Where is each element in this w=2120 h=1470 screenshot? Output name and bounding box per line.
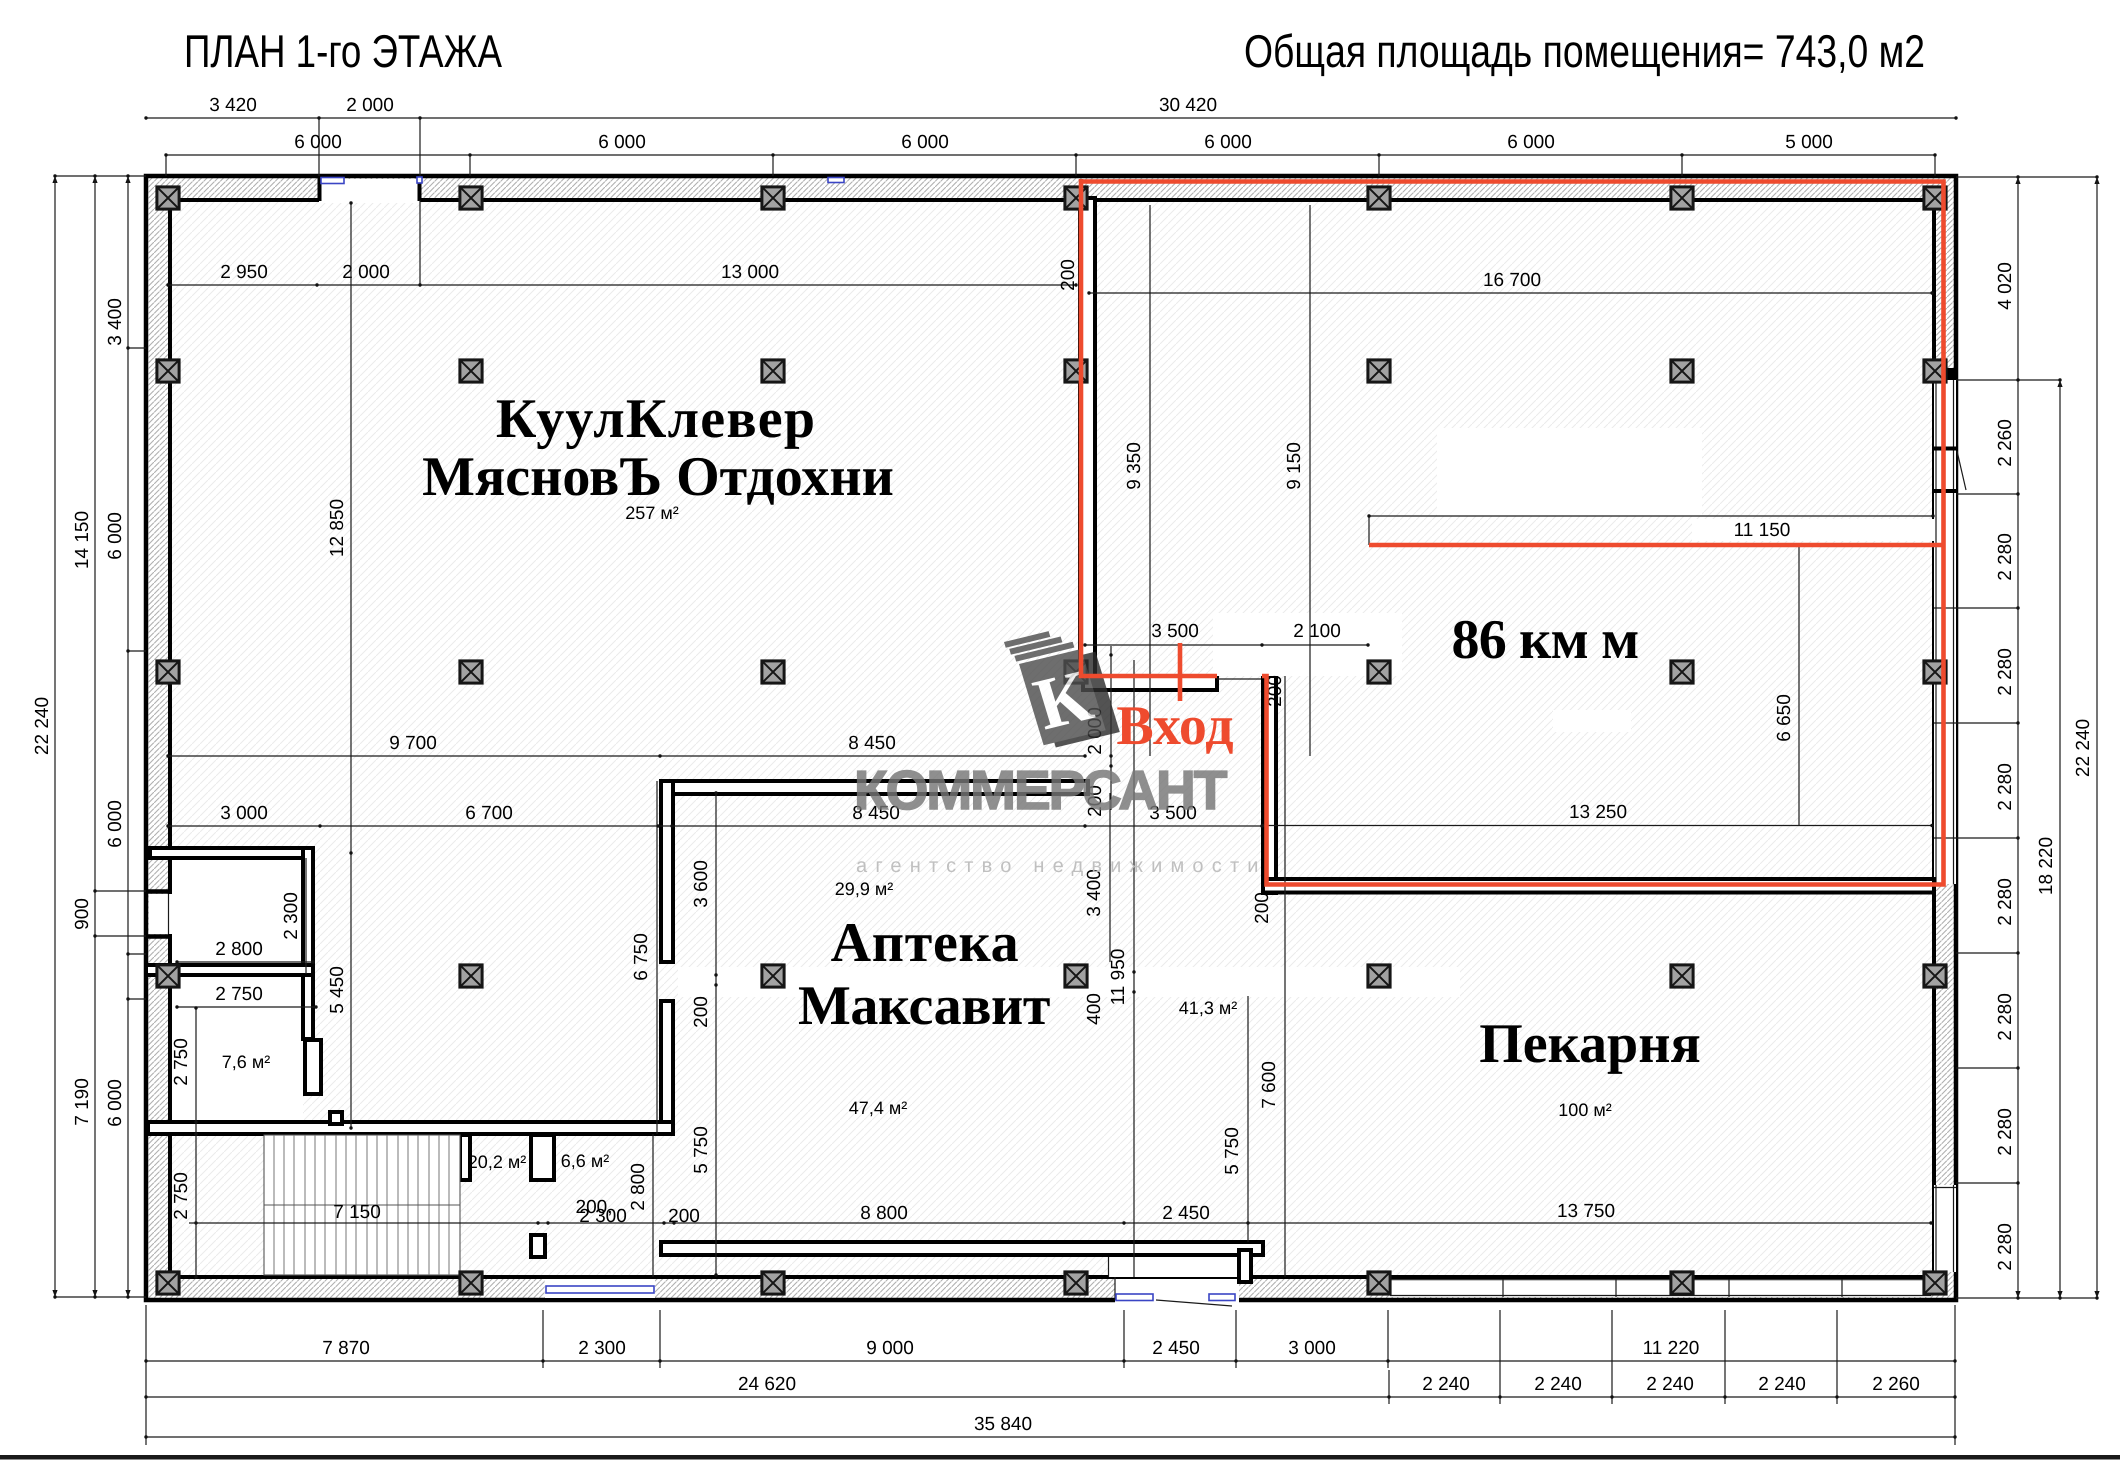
svg-text:14 150: 14 150 (72, 511, 93, 569)
svg-text:6 750: 6 750 (631, 933, 652, 981)
svg-text:9 150: 9 150 (1284, 442, 1305, 490)
svg-text:9 000: 9 000 (866, 1338, 914, 1359)
svg-text:3 000: 3 000 (1288, 1338, 1336, 1359)
svg-text:9 700: 9 700 (389, 733, 437, 754)
svg-text:2 280: 2 280 (1995, 533, 2016, 581)
svg-text:20,2 м²: 20,2 м² (468, 1152, 526, 1172)
svg-text:6 000: 6 000 (1507, 132, 1555, 153)
svg-text:КуулКлевер: КуулКлевер (496, 388, 816, 450)
svg-text:2 280: 2 280 (1995, 878, 2016, 926)
svg-text:2 300: 2 300 (578, 1338, 626, 1359)
svg-text:6 000: 6 000 (294, 132, 342, 153)
svg-text:11 220: 11 220 (1643, 1338, 1700, 1359)
svg-text:47,4 м²: 47,4 м² (849, 1098, 907, 1118)
svg-text:11 150: 11 150 (1734, 520, 1791, 541)
svg-text:2 240: 2 240 (1646, 1374, 1694, 1395)
svg-text:3 400: 3 400 (105, 298, 126, 346)
svg-text:7 150: 7 150 (333, 1202, 381, 1223)
svg-text:2 280: 2 280 (1995, 993, 2016, 1041)
svg-text:2 240: 2 240 (1534, 1374, 1582, 1395)
svg-text:5 750: 5 750 (691, 1126, 712, 1174)
svg-text:2 260: 2 260 (1872, 1374, 1920, 1395)
svg-text:Общая площадь помещения= 743,0: Общая площадь помещения= 743,0 м2 (1244, 25, 1925, 77)
svg-text:7 190: 7 190 (72, 1078, 93, 1126)
svg-text:9 350: 9 350 (1124, 442, 1145, 490)
svg-text:Максавит: Максавит (798, 975, 1050, 1037)
svg-text:3 000: 3 000 (220, 803, 268, 824)
svg-text:11 950: 11 950 (1108, 949, 1129, 1006)
svg-text:13 000: 13 000 (721, 262, 779, 283)
svg-text:2 240: 2 240 (1422, 1374, 1470, 1395)
svg-text:3 600: 3 600 (691, 860, 712, 908)
svg-text:2 300: 2 300 (281, 892, 302, 940)
svg-text:3 420: 3 420 (209, 95, 257, 116)
svg-text:6 650: 6 650 (1774, 694, 1795, 742)
svg-text:900: 900 (72, 898, 93, 930)
svg-text:200: 200 (1058, 259, 1079, 291)
svg-text:2 260: 2 260 (1995, 419, 2016, 467)
svg-text:2 950: 2 950 (220, 262, 268, 283)
svg-text:200: 200 (691, 996, 712, 1028)
svg-text:6 700: 6 700 (465, 803, 513, 824)
svg-text:13 250: 13 250 (1569, 802, 1627, 823)
svg-text:2 280: 2 280 (1995, 763, 2016, 811)
svg-text:5 450: 5 450 (327, 966, 348, 1014)
svg-text:7,6 м²: 7,6 м² (222, 1052, 270, 1072)
svg-text:35 840: 35 840 (974, 1414, 1032, 1435)
svg-text:29,9 м²: 29,9 м² (835, 879, 893, 899)
svg-text:2 750: 2 750 (215, 984, 263, 1005)
svg-text:2 800: 2 800 (215, 939, 263, 960)
svg-text:2 750: 2 750 (171, 1038, 192, 1086)
svg-text:13 750: 13 750 (1557, 1201, 1615, 1222)
svg-text:200: 200 (668, 1206, 700, 1227)
svg-text:2 000: 2 000 (342, 262, 390, 283)
svg-text:24 620: 24 620 (738, 1374, 796, 1395)
svg-text:200: 200 (1252, 892, 1273, 924)
svg-text:2 280: 2 280 (1995, 1108, 2016, 1156)
svg-text:257 м²: 257 м² (625, 503, 678, 523)
svg-text:2 280: 2 280 (1995, 1223, 2016, 1271)
svg-text:30 420: 30 420 (1159, 95, 1217, 116)
svg-text:22 240: 22 240 (32, 697, 53, 755)
svg-text:400: 400 (1084, 993, 1105, 1025)
svg-text:5 000: 5 000 (1785, 132, 1833, 153)
svg-text:2 280: 2 280 (1995, 648, 2016, 696)
svg-text:22 240: 22 240 (2073, 719, 2094, 777)
svg-text:Пекарня: Пекарня (1479, 1013, 1701, 1075)
svg-text:6 000: 6 000 (901, 132, 949, 153)
svg-text:МясновЪ Отдохни: МясновЪ Отдохни (422, 446, 894, 508)
svg-text:6 000: 6 000 (1204, 132, 1252, 153)
svg-text:2 000: 2 000 (346, 95, 394, 116)
svg-text:2 450: 2 450 (1162, 1203, 1210, 1224)
svg-text:6,6 м²: 6,6 м² (561, 1151, 609, 1171)
svg-text:КОММЕРСАНТ: КОММЕРСАНТ (854, 759, 1227, 821)
svg-text:6 000: 6 000 (598, 132, 646, 153)
svg-text:16 700: 16 700 (1483, 270, 1541, 291)
svg-text:4 020: 4 020 (1995, 262, 2016, 310)
svg-text:41,3 м²: 41,3 м² (1179, 998, 1237, 1018)
svg-text:2 750: 2 750 (171, 1172, 192, 1220)
svg-text:7 870: 7 870 (322, 1338, 370, 1359)
svg-text:2 800: 2 800 (628, 1163, 649, 1211)
svg-text:Вход: Вход (1116, 695, 1233, 757)
svg-text:6 000: 6 000 (105, 800, 126, 848)
svg-text:6 000: 6 000 (105, 1079, 126, 1127)
svg-text:агентство недвижимости: агентство недвижимости (856, 855, 1267, 877)
svg-text:7 600: 7 600 (1259, 1061, 1280, 1109)
svg-text:3 500: 3 500 (1151, 621, 1199, 642)
svg-text:8 450: 8 450 (848, 733, 896, 754)
svg-text:2 300: 2 300 (579, 1206, 627, 1227)
svg-text:18 220: 18 220 (2036, 837, 2057, 895)
svg-text:86 км м: 86 км м (1452, 609, 1639, 671)
svg-text:100 м²: 100 м² (1558, 1100, 1611, 1120)
svg-text:8 800: 8 800 (860, 1203, 908, 1224)
svg-text:5 750: 5 750 (1222, 1127, 1243, 1175)
svg-text:2 240: 2 240 (1758, 1374, 1806, 1395)
svg-text:12 850: 12 850 (327, 499, 348, 557)
svg-text:ПЛАН 1-го ЭТАЖА: ПЛАН 1-го ЭТАЖА (184, 25, 502, 77)
svg-text:6 000: 6 000 (105, 512, 126, 560)
svg-text:Аптека: Аптека (831, 912, 1020, 974)
svg-text:2 100: 2 100 (1293, 621, 1341, 642)
svg-text:2 450: 2 450 (1152, 1338, 1200, 1359)
